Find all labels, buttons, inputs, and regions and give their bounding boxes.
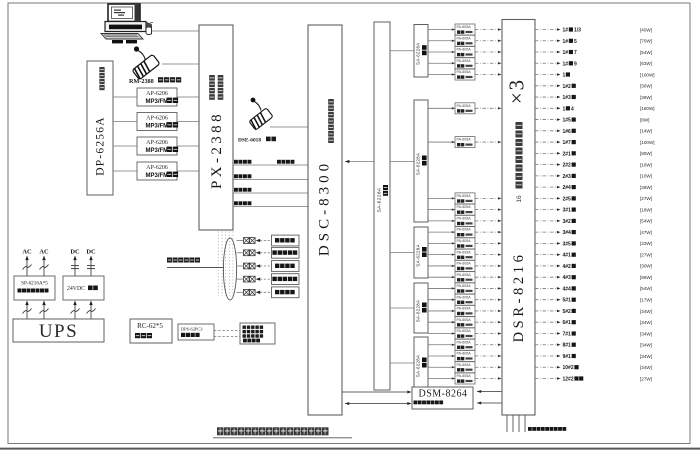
svg-text:1#: 1#	[563, 50, 569, 56]
svg-text:1#: 1#	[563, 61, 569, 67]
svg-text:PA-605A: PA-605A	[457, 59, 472, 63]
svg-text:7#1: 7#1	[563, 331, 572, 337]
svg-text:1/3: 1/3	[574, 28, 581, 34]
svg-text:[27W]: [27W]	[640, 252, 652, 257]
svg-text:PX-2388: PX-2388	[209, 111, 225, 189]
svg-text:PA-605A: PA-605A	[457, 318, 472, 322]
svg-text:[30W]: [30W]	[640, 84, 652, 89]
svg-text:PA-605A: PA-605A	[457, 352, 472, 356]
svg-text:PA-605A: PA-605A	[457, 48, 472, 52]
svg-text:DSR-8216: DSR-8216	[511, 252, 527, 343]
svg-text:PA-605A: PA-605A	[457, 295, 472, 299]
svg-text:[63W]: [63W]	[640, 61, 652, 66]
svg-text:SP-6216A*5: SP-6216A*5	[21, 281, 48, 287]
svg-text:SA-6228A: SA-6228A	[416, 355, 421, 377]
svg-text:AP-6206: AP-6206	[146, 91, 168, 97]
svg-text:[54W]: [54W]	[640, 50, 652, 55]
svg-text:[18W]: [18W]	[640, 207, 652, 212]
svg-text:[34W]: [34W]	[640, 354, 652, 359]
svg-text:10#2: 10#2	[563, 365, 574, 371]
svg-text:[54W]: [54W]	[640, 219, 652, 224]
svg-text:[160W]: [160W]	[640, 106, 655, 111]
svg-text:UPS: UPS	[39, 321, 78, 342]
svg-text:5#2: 5#2	[563, 309, 572, 315]
svg-text:AP-6206: AP-6206	[146, 115, 168, 121]
svg-text:1: 1	[563, 106, 566, 112]
svg-text:4: 4	[571, 106, 574, 112]
svg-text:SA-6228A: SA-6228A	[377, 187, 383, 212]
svg-text:8#1: 8#1	[563, 343, 572, 349]
svg-text:PA-605A: PA-605A	[457, 262, 472, 266]
svg-text:6#1: 6#1	[563, 320, 572, 326]
svg-text:12#2: 12#2	[563, 376, 574, 382]
svg-text:2#4: 2#4	[563, 185, 572, 191]
svg-text:SA-6228A: SA-6228A	[416, 43, 421, 65]
svg-text:[30W]: [30W]	[640, 264, 652, 269]
svg-text:PA-605A: PA-605A	[457, 104, 472, 108]
svg-text:DC: DC	[70, 249, 80, 256]
svg-text:AP-6206: AP-6206	[146, 165, 168, 171]
svg-text:PA-605A: PA-605A	[457, 216, 472, 220]
svg-text:4#4: 4#4	[563, 286, 572, 292]
svg-text:[17W]: [17W]	[640, 297, 652, 302]
svg-text:[34W]: [34W]	[640, 365, 652, 370]
svg-text:[33W]: [33W]	[640, 241, 652, 246]
svg-text:PA-605A: PA-605A	[457, 228, 472, 232]
svg-text:SA-6228A: SA-6228A	[416, 244, 421, 266]
svg-text:3#2: 3#2	[563, 219, 572, 225]
svg-text:3#1: 3#1	[563, 208, 572, 214]
svg-text:1#5: 1#5	[563, 118, 572, 124]
svg-text:4#2: 4#2	[563, 264, 572, 270]
svg-text:[16W]: [16W]	[640, 162, 652, 167]
svg-text:[10W]: [10W]	[640, 174, 652, 179]
svg-text:PA-605A: PA-605A	[457, 307, 472, 311]
svg-text:PA-605A: PA-605A	[457, 138, 472, 142]
svg-text:[27W]: [27W]	[640, 376, 652, 381]
svg-text:[34W]: [34W]	[640, 309, 652, 314]
svg-text:AC: AC	[22, 249, 32, 256]
svg-text:1#2: 1#2	[563, 84, 572, 90]
svg-text:PA-605A: PA-605A	[457, 340, 472, 344]
svg-text:[36W]: [36W]	[640, 185, 652, 190]
svg-text:PA-605A: PA-605A	[457, 363, 472, 367]
svg-text:[34W]: [34W]	[640, 320, 652, 325]
svg-text:[54W]: [54W]	[640, 286, 652, 291]
svg-text:RM-2388: RM-2388	[129, 78, 154, 85]
svg-text:[47W]: [47W]	[640, 230, 652, 235]
svg-text:5#1: 5#1	[563, 298, 572, 304]
svg-text:1#6: 1#6	[563, 129, 572, 135]
svg-text:[40W]: [40W]	[640, 27, 652, 32]
svg-text:PA-605A: PA-605A	[457, 205, 472, 209]
svg-text:2#1: 2#1	[563, 151, 572, 157]
svg-text:2#2: 2#2	[563, 163, 572, 169]
svg-text:AP-6206: AP-6206	[146, 140, 168, 146]
svg-text:PA-605A: PA-605A	[457, 250, 472, 254]
svg-text:[100W]: [100W]	[640, 72, 655, 77]
svg-text:PA-605A: PA-605A	[457, 374, 472, 378]
svg-text:DPS-62PC3: DPS-62PC3	[181, 326, 203, 331]
svg-text:3#5: 3#5	[563, 241, 572, 247]
svg-text:DC: DC	[86, 249, 96, 256]
svg-text:PA-605A: PA-605A	[457, 194, 472, 198]
svg-text:[70W]: [70W]	[640, 39, 652, 44]
svg-text:DSC-8300: DSC-8300	[317, 160, 333, 256]
svg-text:9#1: 9#1	[563, 354, 572, 360]
svg-text:4#3: 4#3	[563, 275, 572, 281]
svg-text:DSM-8264: DSM-8264	[418, 389, 467, 400]
svg-text:[100W]: [100W]	[640, 140, 655, 145]
svg-text:3#4: 3#4	[563, 230, 572, 236]
svg-text:PA-605A: PA-605A	[457, 70, 472, 74]
svg-text:4#1: 4#1	[563, 253, 572, 259]
svg-text:RC-62*5: RC-62*5	[137, 322, 163, 330]
svg-text:PA-605A: PA-605A	[457, 329, 472, 333]
svg-text:DSE-6018: DSE-6018	[238, 138, 261, 144]
svg-text:[34W]: [34W]	[640, 331, 652, 336]
svg-text:×3: ×3	[505, 78, 529, 104]
svg-text:[27W]: [27W]	[640, 196, 652, 201]
svg-text:MP3/FM: MP3/FM	[146, 173, 169, 179]
svg-text:MP3/FM: MP3/FM	[146, 99, 169, 105]
svg-text:1: 1	[563, 73, 566, 79]
svg-text:[34W]: [34W]	[640, 343, 652, 348]
svg-text:2#3: 2#3	[563, 174, 572, 180]
svg-text:PA-605A: PA-605A	[457, 273, 472, 277]
svg-text:SA-6228A: SA-6228A	[416, 153, 421, 175]
svg-text:1#7: 1#7	[563, 140, 572, 146]
svg-text:AC: AC	[39, 249, 49, 256]
svg-text:PA-605A: PA-605A	[457, 25, 472, 29]
svg-text:[86W]: [86W]	[640, 275, 652, 280]
svg-text:SA-6228A: SA-6228A	[416, 300, 421, 322]
svg-text:DP-6256A: DP-6256A	[95, 116, 107, 175]
svg-text:[14W]: [14W]	[640, 129, 652, 134]
svg-text:[8W]: [8W]	[640, 117, 649, 122]
svg-text:MP3/FM: MP3/FM	[146, 148, 169, 154]
svg-text:PA-605A: PA-605A	[457, 239, 472, 243]
svg-text:1#3: 1#3	[563, 95, 572, 101]
svg-text:MP3/FM: MP3/FM	[146, 124, 169, 130]
svg-text:PA-605A: PA-605A	[457, 284, 472, 288]
svg-text:1#: 1#	[563, 28, 569, 34]
svg-text:7: 7	[574, 50, 577, 56]
svg-text:2#5: 2#5	[563, 196, 572, 202]
svg-text:[36W]: [36W]	[640, 95, 652, 100]
svg-text:9: 9	[574, 61, 577, 67]
svg-text:1#: 1#	[563, 39, 569, 45]
svg-text:PA-605A: PA-605A	[457, 36, 472, 40]
svg-text:24VDC: 24VDC	[67, 286, 85, 292]
svg-text:5: 5	[574, 39, 577, 45]
svg-text:16: 16	[516, 195, 523, 203]
svg-text:[85W]: [85W]	[640, 151, 652, 156]
